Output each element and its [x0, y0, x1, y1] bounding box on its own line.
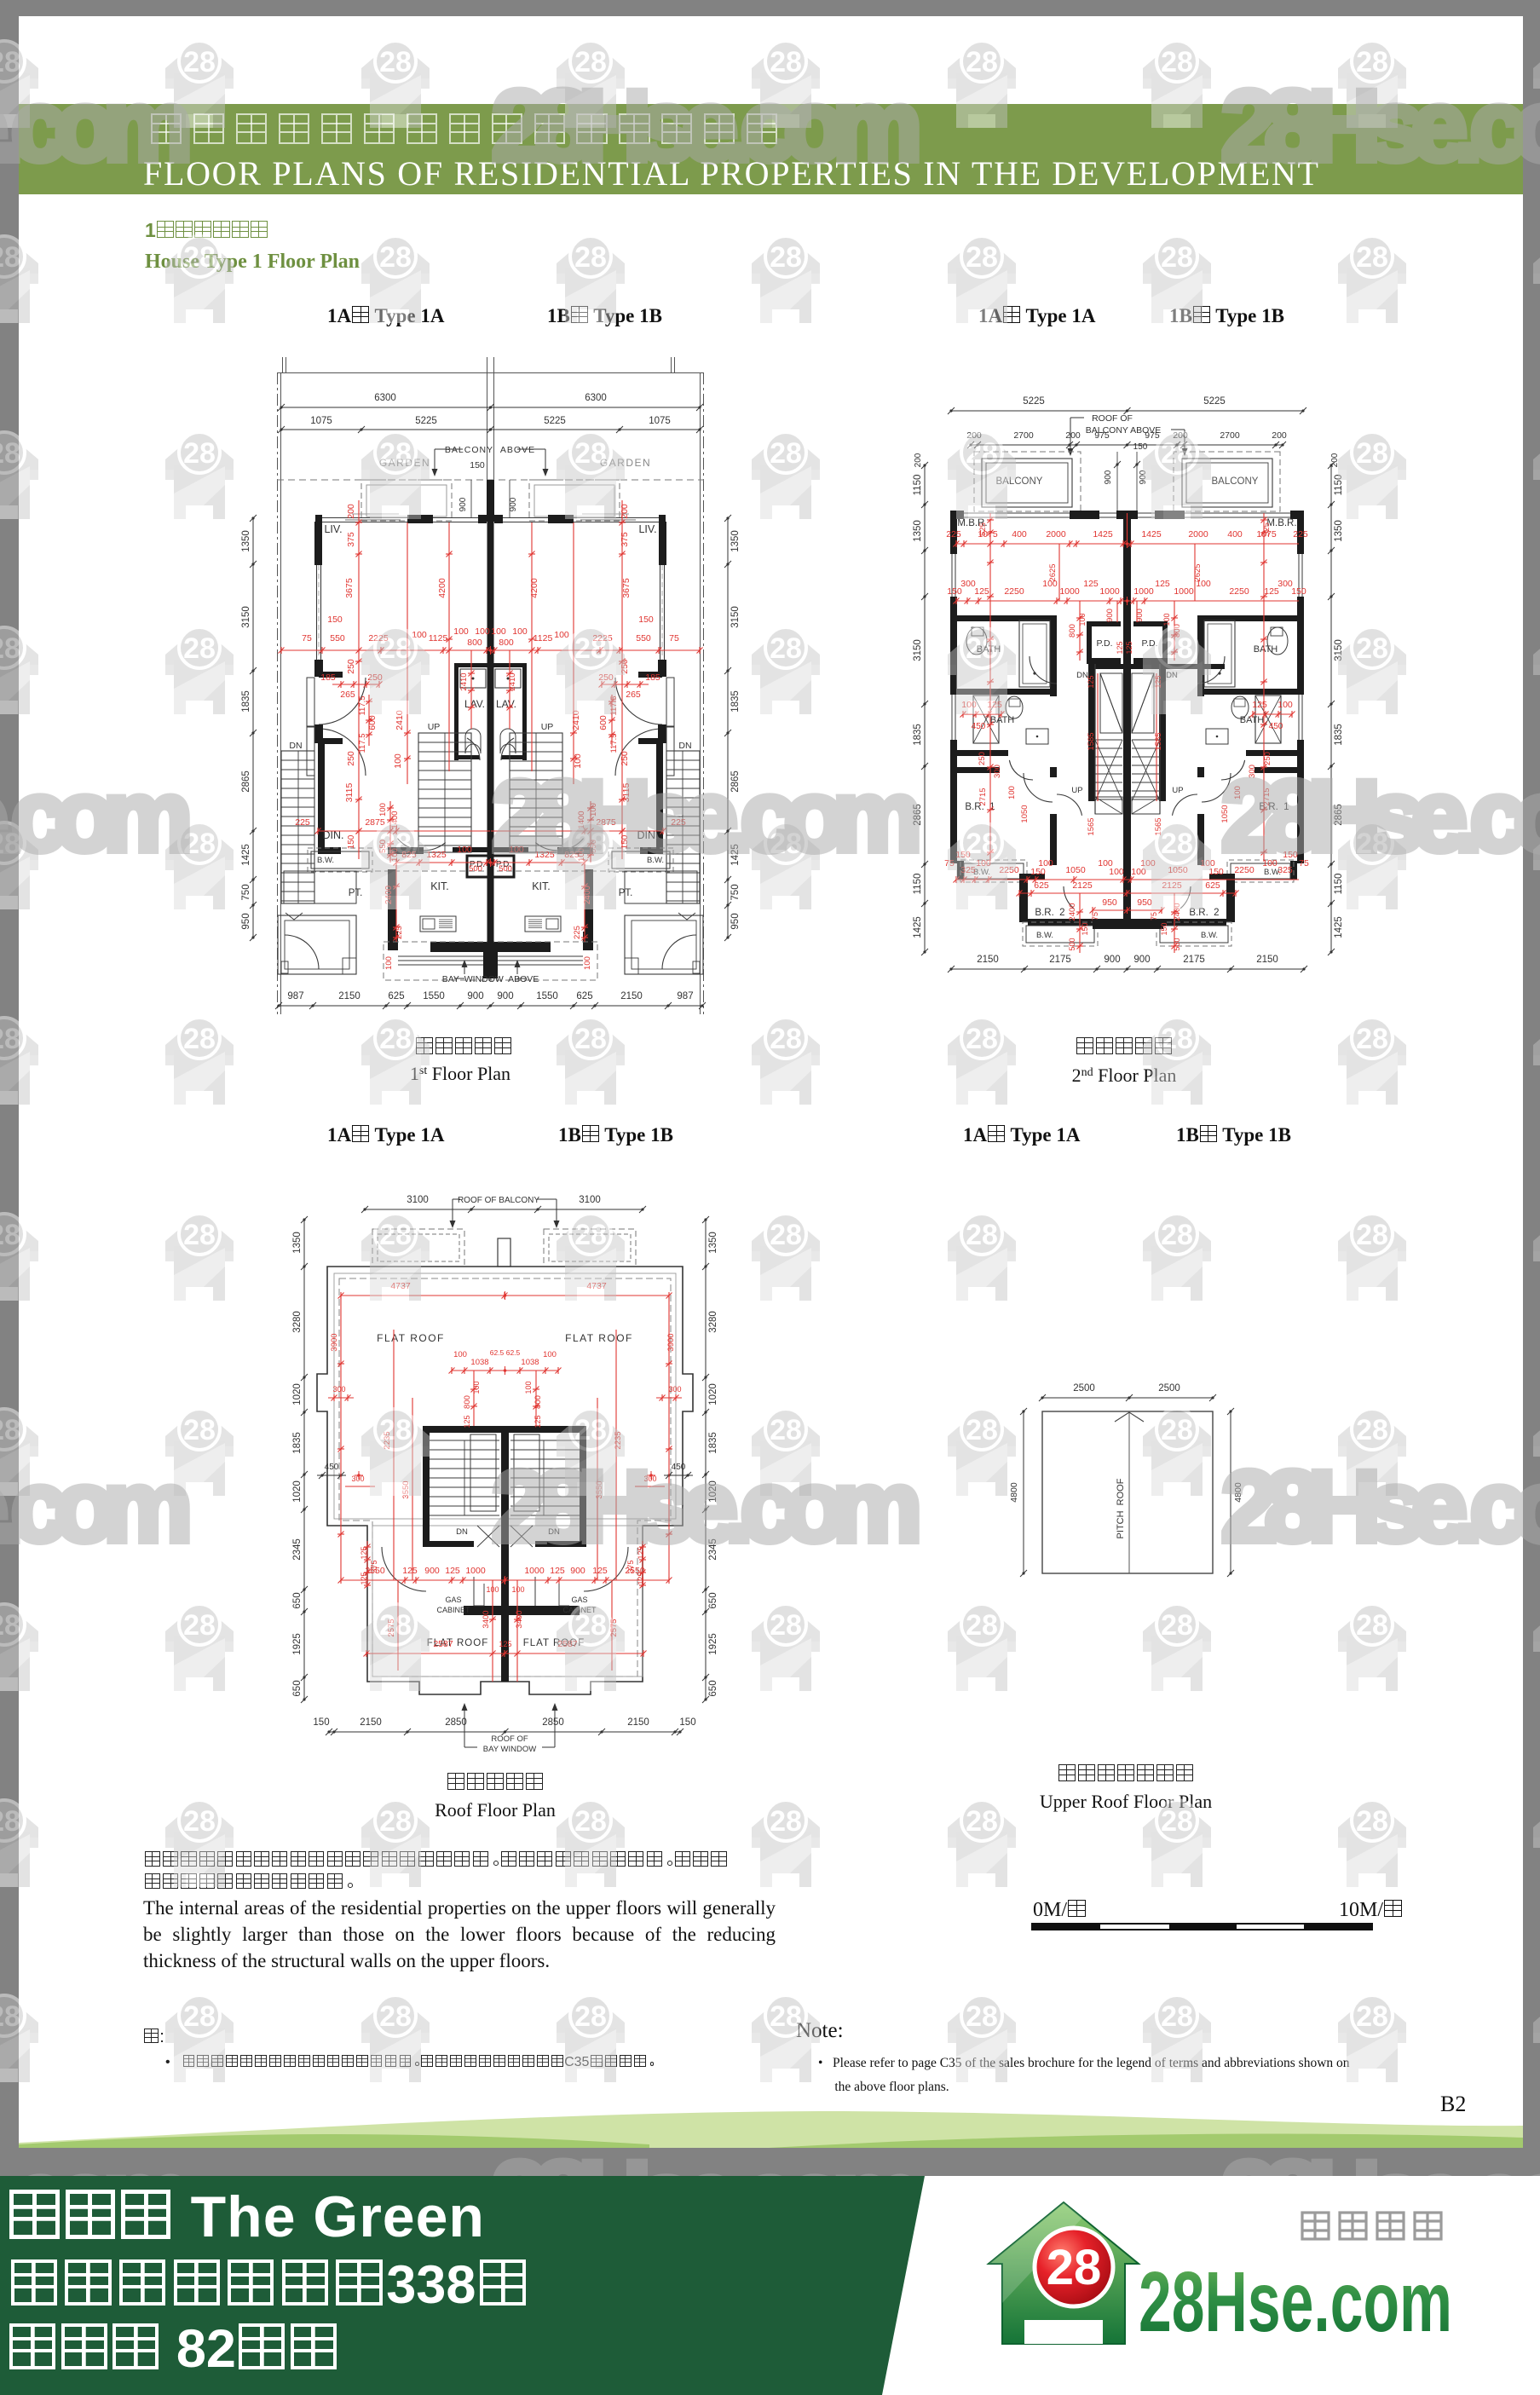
svg-text:2345: 2345: [708, 1538, 718, 1561]
svg-text:3400: 3400: [482, 1610, 491, 1628]
svg-text:400: 400: [1227, 529, 1243, 540]
svg-text:2865: 2865: [241, 770, 251, 793]
svg-text:5225: 5225: [1203, 396, 1226, 407]
svg-text:BATH: BATH: [1254, 644, 1278, 655]
svg-text:1350: 1350: [1334, 520, 1344, 542]
svg-text:625: 625: [1205, 880, 1220, 891]
svg-text:375: 375: [346, 532, 356, 547]
svg-text:1000: 1000: [465, 1566, 486, 1576]
svg-text:1075: 1075: [649, 416, 671, 426]
svg-text:1000: 1000: [1099, 586, 1120, 597]
svg-text:2400: 2400: [384, 885, 394, 904]
svg-text:1150: 1150: [1334, 475, 1344, 496]
svg-text:300: 300: [1248, 765, 1257, 778]
svg-text:225: 225: [573, 926, 582, 939]
svg-text:GARDEN: GARDEN: [600, 457, 651, 469]
svg-text:117.5: 117.5: [358, 733, 367, 753]
svg-text:1835: 1835: [708, 1432, 718, 1454]
svg-text:2587: 2587: [433, 1639, 453, 1649]
svg-text:525: 525: [1262, 522, 1272, 536]
svg-text:800: 800: [499, 638, 514, 648]
svg-text:3150: 3150: [913, 639, 923, 661]
svg-text:FLAT ROOF: FLAT ROOF: [565, 1332, 633, 1344]
svg-text:1835: 1835: [730, 690, 741, 713]
svg-text:1835: 1835: [913, 724, 923, 746]
svg-text:2150: 2150: [977, 955, 999, 965]
svg-text:4200: 4200: [529, 578, 539, 598]
svg-text:200: 200: [1272, 430, 1287, 441]
svg-text:2345: 2345: [292, 1538, 303, 1561]
svg-text:2150: 2150: [627, 1717, 649, 1728]
svg-text:KIT.: KIT.: [532, 880, 551, 892]
svg-text:3900: 3900: [330, 1333, 339, 1351]
svg-text:150: 150: [1283, 850, 1298, 860]
svg-text:2150: 2150: [620, 991, 643, 1001]
svg-text:800: 800: [534, 1395, 543, 1409]
svg-text:900: 900: [1133, 955, 1150, 965]
svg-text:1000: 1000: [524, 1566, 545, 1576]
svg-text:800: 800: [1173, 624, 1182, 638]
svg-text:325: 325: [960, 865, 976, 875]
svg-text:117.5: 117.5: [358, 695, 367, 715]
svg-text:B.R. 2: B.R. 2: [1035, 908, 1064, 918]
svg-text:150: 150: [1133, 442, 1148, 452]
svg-text:2500: 2500: [1073, 1383, 1095, 1394]
svg-text:100: 100: [453, 1350, 467, 1359]
svg-text:28: 28: [1047, 2240, 1102, 2295]
svg-text:2400: 2400: [1068, 903, 1077, 920]
svg-text:400: 400: [1012, 529, 1027, 540]
svg-text:LAV.: LAV.: [464, 698, 485, 710]
svg-text:200: 200: [1330, 453, 1340, 467]
svg-text:225: 225: [395, 926, 404, 939]
svg-text:200: 200: [914, 453, 923, 467]
svg-text:FLAT ROOF: FLAT ROOF: [377, 1332, 445, 1344]
svg-text:100: 100: [475, 626, 490, 637]
svg-text:550: 550: [589, 840, 598, 853]
svg-text:100: 100: [543, 1350, 557, 1359]
svg-text:150: 150: [638, 615, 654, 625]
svg-text:DN: DN: [678, 741, 691, 751]
svg-text:800: 800: [467, 638, 482, 648]
svg-text:100: 100: [524, 1381, 533, 1394]
svg-text:2250: 2250: [1004, 586, 1024, 597]
svg-text:125: 125: [987, 700, 1002, 710]
svg-text:B.W.: B.W.: [647, 856, 664, 865]
svg-text:1150: 1150: [1334, 874, 1344, 895]
svg-text:75: 75: [1299, 858, 1309, 869]
svg-text:300: 300: [351, 1475, 364, 1483]
svg-text:650: 650: [708, 1592, 718, 1608]
svg-text:75: 75: [944, 858, 955, 869]
svg-text:600: 600: [598, 715, 609, 730]
svg-text:150: 150: [955, 850, 971, 860]
svg-text:2410: 2410: [508, 672, 517, 690]
svg-text:2850: 2850: [445, 1717, 467, 1728]
svg-text:150: 150: [1081, 922, 1089, 935]
svg-text:DN: DN: [289, 741, 302, 751]
svg-text:150: 150: [679, 1717, 695, 1728]
svg-text:900: 900: [497, 991, 513, 1001]
svg-text:100: 100: [1262, 858, 1278, 869]
svg-text:CABINET: CABINET: [562, 1606, 597, 1614]
svg-text:500: 500: [1173, 938, 1181, 950]
svg-text:125: 125: [1252, 700, 1267, 710]
svg-text:250: 250: [620, 659, 630, 674]
svg-text:950: 950: [1102, 897, 1117, 908]
svg-text:125: 125: [1264, 586, 1279, 597]
svg-text:1150: 1150: [913, 874, 923, 895]
svg-text:2865: 2865: [730, 770, 741, 793]
svg-text:550: 550: [636, 633, 651, 643]
svg-text:UP: UP: [1172, 786, 1183, 795]
svg-text:B.R. 2: B.R. 2: [1189, 908, 1219, 918]
svg-text:100: 100: [1131, 867, 1146, 877]
svg-text:75: 75: [302, 633, 312, 643]
svg-text:525: 525: [978, 522, 988, 536]
svg-text:5225: 5225: [1023, 396, 1045, 407]
svg-text:1350: 1350: [292, 1232, 303, 1254]
svg-text:B.W.: B.W.: [1201, 931, 1218, 940]
svg-text:250: 250: [367, 672, 383, 683]
svg-text:100: 100: [390, 848, 400, 862]
svg-text:100: 100: [412, 630, 427, 640]
svg-text:1565: 1565: [1087, 817, 1096, 835]
svg-text:B.W.: B.W.: [317, 856, 334, 865]
svg-text:1550: 1550: [536, 991, 558, 1001]
svg-text:2125: 2125: [1162, 880, 1182, 891]
svg-text:2175: 2175: [1183, 955, 1205, 965]
svg-text:250: 250: [346, 751, 356, 766]
svg-text:100: 100: [573, 753, 583, 769]
svg-text:1050: 1050: [1020, 805, 1030, 822]
svg-text:900: 900: [1139, 470, 1148, 484]
svg-text:1038: 1038: [521, 1358, 539, 1367]
svg-text:PT.: PT.: [619, 888, 633, 898]
svg-text:100: 100: [589, 803, 598, 817]
svg-text:2410: 2410: [459, 672, 469, 690]
svg-text:800: 800: [1068, 624, 1077, 638]
svg-text:800: 800: [463, 1395, 472, 1409]
svg-text:PT.: PT.: [349, 888, 363, 898]
svg-text:1550: 1550: [423, 991, 445, 1001]
svg-text:125: 125: [1125, 641, 1133, 654]
svg-text:B.W.: B.W.: [1036, 931, 1053, 940]
svg-text:100: 100: [1007, 786, 1017, 799]
svg-text:125: 125: [550, 1566, 565, 1576]
svg-text:2000: 2000: [1046, 529, 1066, 540]
svg-text:125: 125: [445, 1566, 460, 1576]
svg-text:450: 450: [325, 1463, 339, 1472]
svg-text:2865: 2865: [913, 804, 923, 826]
svg-text:550: 550: [378, 840, 388, 853]
svg-text:375: 375: [626, 1560, 635, 1573]
svg-text:250: 250: [620, 751, 630, 766]
svg-text:75: 75: [1091, 912, 1099, 920]
svg-text:900: 900: [459, 497, 468, 511]
svg-text:PITCH ROOF: PITCH ROOF: [1116, 1478, 1126, 1538]
svg-text:100: 100: [511, 1585, 524, 1594]
svg-text:GARDEN: GARDEN: [379, 457, 430, 469]
svg-text:117.5: 117.5: [609, 733, 619, 753]
svg-text:500: 500: [1068, 938, 1076, 950]
svg-text:1125: 1125: [429, 633, 448, 643]
svg-text:2500: 2500: [1158, 1383, 1180, 1394]
svg-text:3280: 3280: [708, 1311, 718, 1333]
svg-text:2225: 2225: [368, 633, 389, 643]
svg-text:1325: 1325: [426, 850, 447, 860]
svg-text:987: 987: [287, 991, 303, 1001]
svg-text:1425: 1425: [913, 916, 923, 938]
svg-text:250: 250: [598, 672, 614, 683]
svg-text:1038: 1038: [470, 1358, 488, 1367]
svg-text:P.D.: P.D.: [1096, 638, 1112, 649]
svg-text:150: 150: [620, 834, 630, 849]
svg-text:200: 200: [966, 430, 982, 441]
svg-text:225: 225: [295, 817, 310, 828]
svg-text:950: 950: [1137, 897, 1152, 908]
svg-text:825: 825: [401, 850, 417, 860]
svg-text:BALCONY: BALCONY: [1212, 476, 1259, 487]
svg-text:1050: 1050: [1168, 865, 1188, 875]
svg-text:3115: 3115: [621, 783, 632, 803]
svg-text:1425: 1425: [730, 844, 741, 866]
svg-text:3675: 3675: [344, 578, 355, 598]
svg-text:125: 125: [1116, 641, 1124, 654]
svg-text:750: 750: [241, 884, 251, 900]
svg-text:900: 900: [467, 991, 483, 1001]
svg-text:900: 900: [1104, 470, 1113, 484]
svg-text:150: 150: [327, 615, 343, 625]
svg-text:100: 100: [457, 845, 472, 855]
svg-text:987: 987: [677, 991, 693, 1001]
svg-text:125: 125: [402, 1566, 418, 1576]
svg-text:LIV.: LIV.: [638, 523, 656, 535]
svg-text:1585: 1585: [1087, 732, 1096, 750]
svg-text:150: 150: [1208, 867, 1224, 877]
svg-text:100: 100: [378, 803, 388, 817]
svg-text:1000: 1000: [1059, 586, 1080, 597]
svg-text:100: 100: [583, 956, 592, 970]
svg-text:750: 750: [730, 884, 741, 900]
svg-text:900: 900: [1135, 609, 1145, 622]
svg-text:375: 375: [370, 1560, 378, 1573]
svg-text:BATH: BATH: [990, 715, 1015, 725]
svg-text:300: 300: [332, 1385, 345, 1394]
svg-text:UP: UP: [428, 722, 441, 732]
svg-text:5225: 5225: [544, 416, 566, 426]
svg-text:117.5: 117.5: [609, 695, 619, 715]
svg-text:4800: 4800: [1009, 1482, 1019, 1503]
svg-text:100: 100: [512, 626, 528, 637]
svg-text:2850: 2850: [542, 1717, 564, 1728]
svg-text:BAY WINDOW: BAY WINDOW: [483, 1745, 536, 1754]
svg-text:300: 300: [1278, 579, 1293, 589]
svg-text:1050: 1050: [1220, 805, 1230, 822]
svg-text:125: 125: [1154, 675, 1162, 688]
svg-text:2235: 2235: [614, 1431, 623, 1449]
svg-text:300: 300: [668, 1385, 681, 1394]
svg-text:950: 950: [730, 913, 741, 929]
svg-text:2125: 2125: [1072, 880, 1093, 891]
svg-text:75: 75: [1150, 912, 1158, 920]
svg-text:100: 100: [509, 845, 524, 855]
svg-text:2875: 2875: [365, 817, 385, 828]
svg-text:1835: 1835: [1334, 724, 1344, 746]
svg-text:1925: 1925: [292, 1633, 303, 1655]
svg-text:2875: 2875: [596, 817, 616, 828]
svg-text:ROOF OF: ROOF OF: [491, 1734, 528, 1744]
svg-text:1350: 1350: [708, 1232, 718, 1254]
svg-text:100: 100: [393, 753, 403, 769]
svg-text:UP: UP: [541, 722, 554, 732]
svg-text:100: 100: [453, 626, 469, 637]
svg-text:1125: 1125: [534, 633, 553, 643]
svg-text:DN: DN: [1166, 671, 1178, 680]
svg-text:2400: 2400: [583, 885, 592, 904]
svg-text:4737: 4737: [586, 1281, 607, 1291]
svg-text:DN: DN: [548, 1527, 560, 1537]
svg-text:100: 100: [577, 848, 586, 862]
svg-text:200: 200: [1173, 430, 1188, 441]
svg-text:900: 900: [570, 1566, 585, 1576]
svg-text:3100: 3100: [407, 1195, 429, 1205]
svg-text:2400: 2400: [1173, 903, 1182, 920]
svg-text:100: 100: [491, 626, 506, 637]
svg-text:1075: 1075: [310, 416, 332, 426]
svg-text:1425: 1425: [1093, 529, 1113, 540]
svg-text:3550: 3550: [595, 1480, 604, 1498]
svg-text:B.W.: B.W.: [973, 868, 990, 877]
svg-text:1425: 1425: [1141, 529, 1162, 540]
svg-text:150: 150: [470, 460, 485, 470]
svg-text:3400: 3400: [515, 1610, 524, 1628]
svg-text:150: 150: [347, 834, 356, 849]
svg-text:625: 625: [1034, 880, 1049, 891]
svg-text:1425: 1425: [241, 844, 251, 866]
svg-text:100: 100: [976, 858, 991, 869]
svg-text:650: 650: [292, 1592, 303, 1608]
svg-text:2150: 2150: [338, 991, 360, 1001]
svg-text:1350: 1350: [913, 520, 923, 542]
svg-text:ROOF OF: ROOF OF: [1092, 413, 1133, 424]
svg-text:975: 975: [1145, 430, 1160, 441]
svg-text:1425: 1425: [1334, 916, 1344, 938]
svg-text:6300: 6300: [585, 393, 607, 403]
svg-text:125: 125: [534, 1415, 542, 1428]
svg-text:3150: 3150: [241, 606, 251, 628]
svg-text:1020: 1020: [708, 1383, 718, 1405]
svg-text:125: 125: [463, 1415, 471, 1428]
svg-text:4800: 4800: [1233, 1482, 1243, 1503]
svg-text:62.5: 62.5: [506, 1348, 521, 1357]
svg-text:3100: 3100: [579, 1195, 601, 1205]
svg-text:125: 125: [974, 586, 989, 597]
svg-text:975: 975: [1094, 430, 1110, 441]
svg-text:650: 650: [292, 1680, 303, 1696]
svg-text:550: 550: [330, 633, 345, 643]
svg-text:2625: 2625: [1193, 563, 1203, 581]
svg-text:2715: 2715: [978, 788, 988, 805]
svg-text:1925: 1925: [708, 1633, 718, 1655]
svg-text:2410: 2410: [571, 710, 581, 730]
svg-text:125: 125: [592, 1566, 608, 1576]
svg-text:1350: 1350: [730, 530, 741, 552]
svg-text:62.5: 62.5: [490, 1348, 505, 1357]
svg-text:2000: 2000: [1188, 529, 1208, 540]
svg-text:300: 300: [993, 765, 1002, 778]
svg-text:DN: DN: [456, 1527, 468, 1537]
svg-text:2700: 2700: [1220, 430, 1240, 441]
svg-text:450: 450: [972, 722, 986, 731]
svg-text:185: 185: [320, 672, 336, 683]
svg-text:2175: 2175: [1049, 955, 1071, 965]
svg-text:1000: 1000: [1174, 586, 1194, 597]
svg-text:1350: 1350: [241, 530, 251, 552]
svg-text:3675: 3675: [621, 578, 632, 598]
svg-text:450: 450: [672, 1463, 686, 1472]
svg-text:100: 100: [1109, 867, 1124, 877]
svg-text:BAY WINDOW ABOVE: BAY WINDOW ABOVE: [442, 974, 539, 984]
svg-text:1050: 1050: [1065, 865, 1086, 875]
svg-text:2150: 2150: [360, 1717, 382, 1728]
svg-text:900: 900: [509, 497, 518, 511]
svg-text:100: 100: [554, 630, 569, 640]
svg-text:125: 125: [1083, 579, 1099, 589]
svg-text:100: 100: [1078, 613, 1087, 626]
svg-text:1020: 1020: [292, 1480, 303, 1503]
svg-text:2235: 2235: [383, 1431, 392, 1449]
svg-text:600: 600: [367, 715, 378, 730]
svg-text:625: 625: [388, 991, 404, 1001]
svg-text:2225: 2225: [592, 633, 613, 643]
svg-text:3150: 3150: [730, 606, 741, 628]
svg-text:GAS: GAS: [445, 1596, 461, 1604]
svg-text:265: 265: [626, 690, 641, 700]
svg-text:LIV.: LIV.: [324, 523, 342, 535]
svg-text:4737: 4737: [390, 1281, 411, 1291]
svg-text:375: 375: [620, 532, 630, 547]
svg-text:2410: 2410: [395, 710, 405, 730]
svg-text:2865: 2865: [1334, 804, 1344, 826]
svg-text:950: 950: [241, 913, 251, 929]
svg-text:150: 150: [1160, 922, 1168, 935]
svg-text:300: 300: [643, 1475, 656, 1483]
svg-text:900: 900: [1105, 609, 1115, 622]
svg-text:125: 125: [499, 1640, 511, 1648]
svg-text:225: 225: [946, 529, 961, 540]
svg-text:ROOF OF BALCONY: ROOF OF BALCONY: [458, 1196, 539, 1205]
svg-text:200: 200: [346, 504, 356, 519]
svg-text:1150: 1150: [913, 475, 923, 496]
svg-text:325: 325: [1278, 865, 1293, 875]
svg-text:3550: 3550: [401, 1480, 411, 1498]
svg-text:2625: 2625: [1048, 563, 1058, 581]
svg-text:100: 100: [1278, 700, 1293, 710]
svg-text:1325: 1325: [534, 850, 555, 860]
svg-text:28Hse.com: 28Hse.com: [1139, 2254, 1452, 2350]
svg-text:UP: UP: [1071, 786, 1082, 795]
svg-text:225: 225: [671, 817, 686, 828]
svg-text:265: 265: [340, 690, 355, 700]
svg-text:2700: 2700: [1013, 430, 1034, 441]
svg-text:3900: 3900: [666, 1333, 676, 1351]
svg-text:6300: 6300: [374, 393, 396, 403]
svg-text:900: 900: [424, 1566, 440, 1576]
svg-text:P.D.: P.D.: [1141, 638, 1157, 649]
svg-text:150: 150: [1291, 586, 1306, 597]
svg-text:2587: 2587: [557, 1639, 578, 1649]
